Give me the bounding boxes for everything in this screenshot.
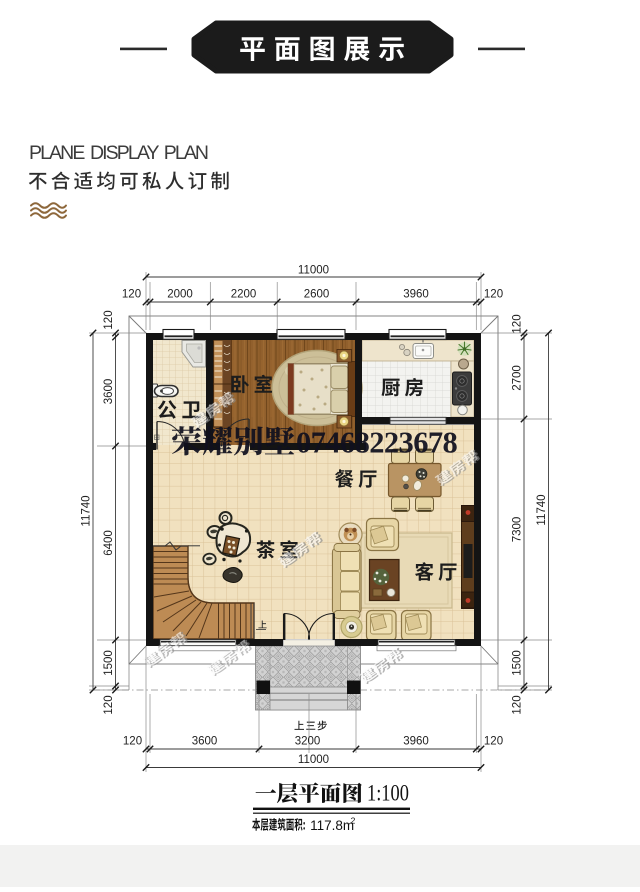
- svg-text:120: 120: [123, 736, 142, 748]
- svg-text:120: 120: [512, 314, 524, 333]
- svg-text:2700: 2700: [512, 365, 524, 391]
- svg-text:2: 2: [351, 816, 356, 826]
- svg-text:120: 120: [103, 695, 115, 714]
- svg-text:11740: 11740: [536, 494, 548, 525]
- svg-text:120: 120: [122, 289, 141, 301]
- svg-text:11740: 11740: [81, 495, 93, 526]
- svg-text:120: 120: [512, 695, 524, 714]
- svg-text:120: 120: [484, 289, 503, 301]
- svg-text:1500: 1500: [103, 650, 115, 676]
- svg-text:3960: 3960: [403, 736, 429, 748]
- svg-text:2200: 2200: [231, 289, 257, 301]
- svg-text:7300: 7300: [512, 517, 524, 543]
- svg-text:11000: 11000: [298, 265, 329, 277]
- svg-text:6400: 6400: [103, 530, 115, 556]
- svg-text:1500: 1500: [512, 650, 524, 676]
- svg-text:117.8m: 117.8m: [310, 818, 354, 833]
- svg-text:120: 120: [484, 736, 503, 748]
- svg-text:2600: 2600: [304, 289, 330, 301]
- svg-text:1:100: 1:100: [367, 780, 409, 807]
- svg-text:2000: 2000: [167, 289, 193, 301]
- svg-text:3600: 3600: [103, 379, 115, 405]
- svg-text:120: 120: [103, 310, 115, 329]
- svg-text:07468223678: 07468223678: [296, 426, 458, 460]
- svg-text:3200: 3200: [295, 736, 321, 748]
- svg-text:PLANE DISPLAY PLAN: PLANE DISPLAY PLAN: [29, 142, 208, 164]
- svg-text:11000: 11000: [298, 754, 329, 766]
- svg-text:3600: 3600: [192, 736, 218, 748]
- svg-text:3960: 3960: [403, 289, 429, 301]
